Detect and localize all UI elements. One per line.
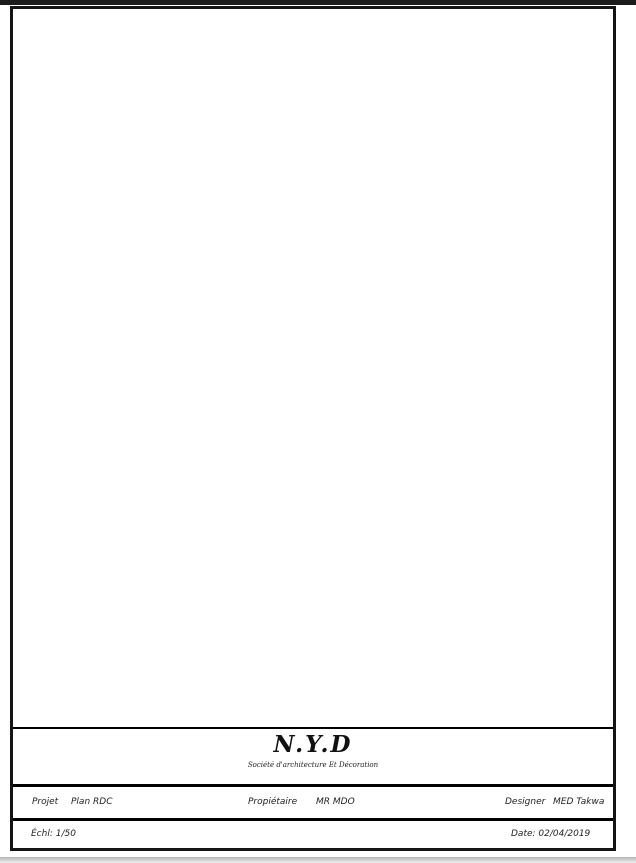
projet-label: Projet bbox=[32, 797, 58, 807]
proprietaire-value: MR MDO bbox=[316, 797, 355, 807]
project-info-row: Projet Plan RDC Propiétaire MR MDO Desig… bbox=[13, 787, 613, 821]
title-block: N.Y.D Société d'architecture Et Décorati… bbox=[13, 727, 613, 848]
proprietaire-label: Propiétaire bbox=[248, 797, 297, 807]
company-section: N.Y.D Société d'architecture Et Décorati… bbox=[13, 727, 613, 787]
projet-value: Plan RDC bbox=[71, 797, 112, 807]
scale-date-row: Échl: 1/50 Date: 02/04/2019 bbox=[13, 821, 613, 848]
company-subtitle: Société d'architecture Et Décoration bbox=[13, 761, 613, 769]
scan-edge-bottom bbox=[0, 857, 636, 863]
designer-value: MED Takwa bbox=[553, 797, 604, 807]
drawing-border: N.Y.D Société d'architecture Et Décorati… bbox=[10, 6, 616, 851]
scale-value: Échl: 1/50 bbox=[31, 829, 76, 839]
company-name: N.Y.D bbox=[13, 732, 613, 758]
scanned-floor-plan-page: 1562150115425816012054028054021354012025… bbox=[0, 0, 636, 863]
designer-label: Designer bbox=[505, 797, 545, 807]
date-value: Date: 02/04/2019 bbox=[511, 829, 590, 839]
